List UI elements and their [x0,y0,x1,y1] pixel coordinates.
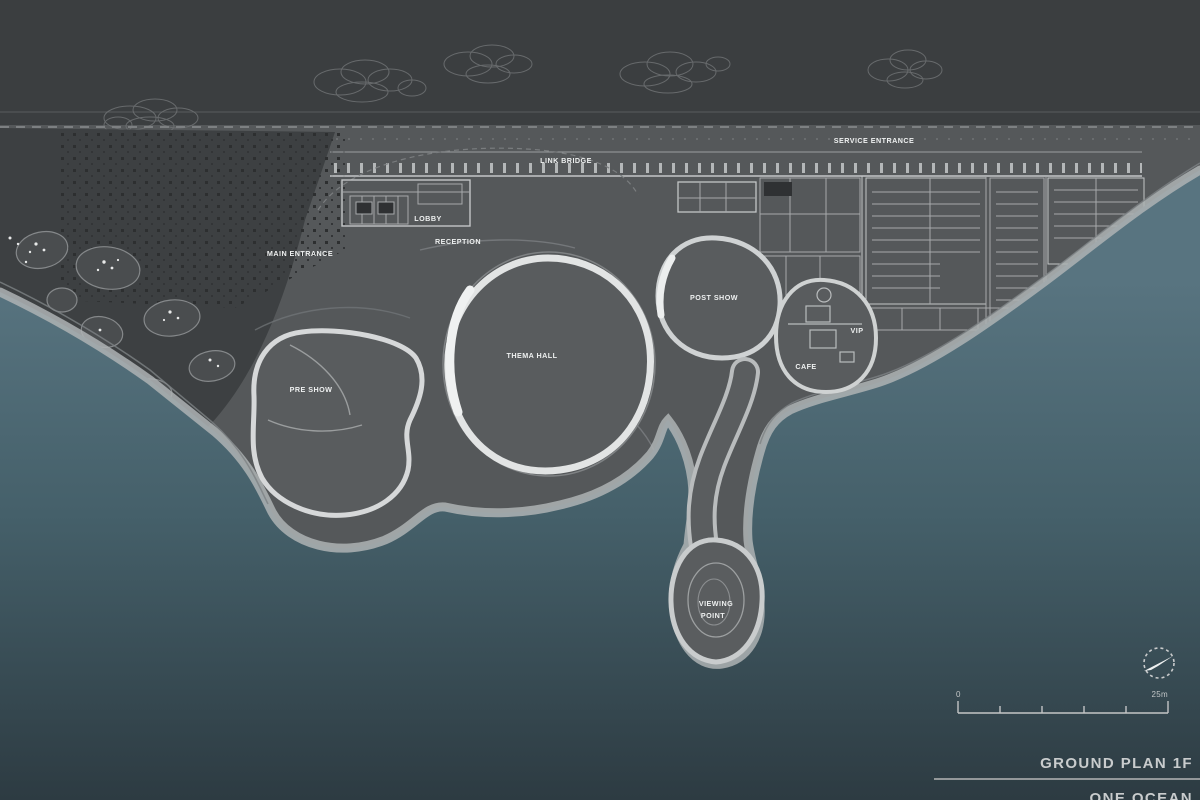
label-reception: RECEPTION [435,237,481,246]
label-service-entrance: SERVICE ENTRANCE [834,136,915,145]
label-vip: VIP [851,326,864,335]
label-post-show: POST SHOW [690,293,738,302]
label-main-entrance: MAIN ENTRANCE [267,249,333,258]
label-viewing-point-line1: VIEWING [699,599,733,608]
label-cafe: CAFE [795,362,816,371]
label-thema-hall: THEMA HALL [507,351,558,360]
scale-zero-label: 0 [956,690,961,699]
label-viewing-point-line2: POINT [701,611,725,620]
scale-max-label: 25m [1152,690,1168,699]
label-link-bridge: LINK BRIDGE [540,156,592,165]
cafe-vip-volume [776,280,876,392]
plan-title: GROUND PLAN 1F [1040,755,1193,772]
project-title: ONE OCEAN [1090,790,1193,800]
label-pre-show: PRE SHOW [290,385,333,394]
pre-show-hall [253,331,422,516]
ground-plan-sheet: MAIN ENTRANCE LOBBY RECEPTION LINK BRIDG… [0,0,1200,800]
site-plan-drawing: MAIN ENTRANCE LOBBY RECEPTION LINK BRIDG… [0,0,1200,800]
label-lobby: LOBBY [414,214,441,223]
